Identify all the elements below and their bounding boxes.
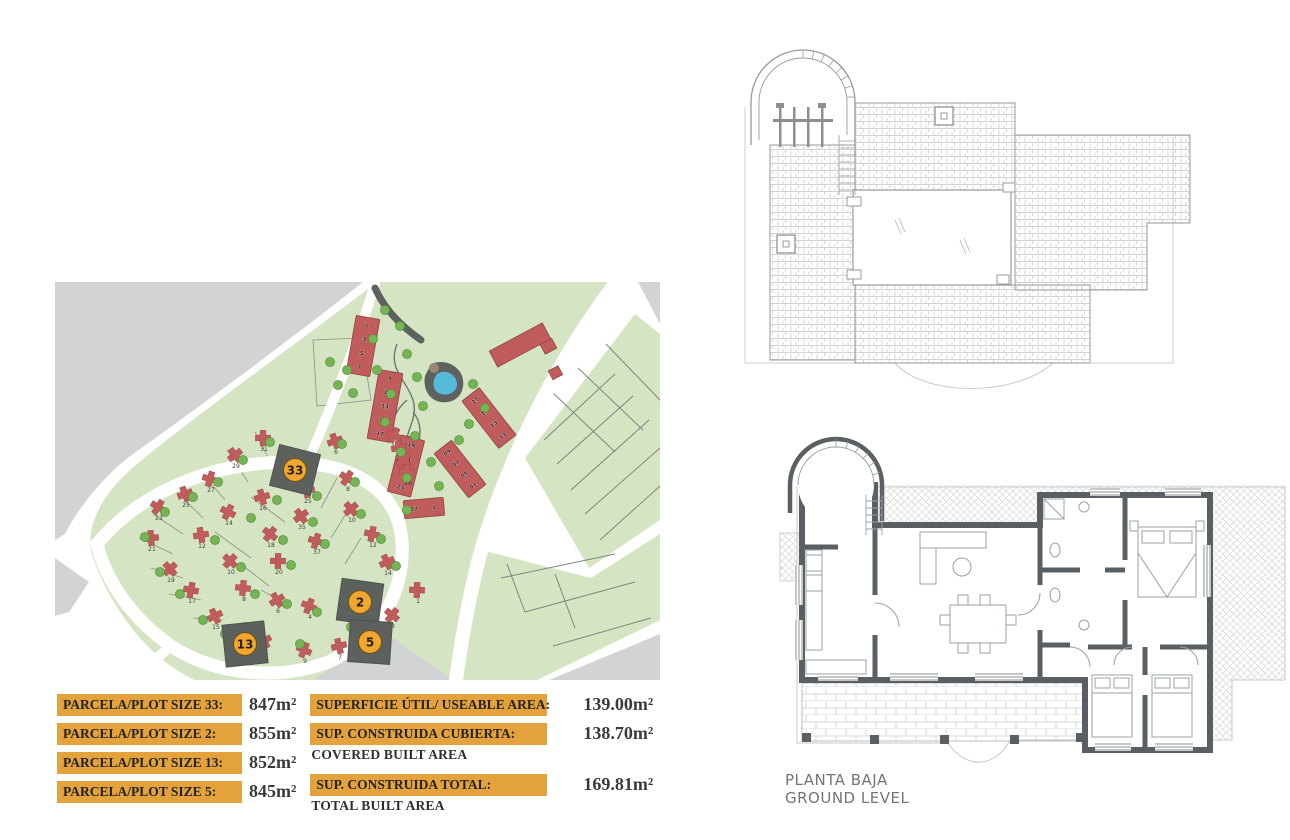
plot-size-row: PARCELA/PLOT SIZE 33:847m² [57,694,296,716]
villa-plot-number: 14 [225,520,233,527]
tree [326,358,335,367]
villa-plot-number: 25 [182,502,190,509]
tree [369,335,378,344]
villa-plot-number: 8 [242,596,246,603]
tree [403,350,412,359]
window [795,565,803,605]
tree [247,514,256,523]
villa-plot-number: 10 [227,569,235,576]
plot-size-value: 855m² [249,723,296,744]
villa-plot-number: 10 [348,517,356,524]
tree [214,478,223,487]
tree [469,380,478,389]
tree [321,540,330,549]
villa-plot-number: 16 [259,505,267,512]
villa-plot-number: 23 [155,515,163,522]
tree [349,389,358,398]
tree [377,535,386,544]
gray-area-top-right [638,282,660,324]
villa-plot-number: 37 [313,549,321,556]
roof-plan [735,45,1215,420]
pergola [773,103,833,147]
tree [481,404,490,413]
tree [381,418,390,427]
tree [455,436,464,445]
villa-plot-number: 12 [369,542,377,549]
window [1095,743,1131,751]
tree [176,590,185,599]
tree [357,510,366,519]
built-area-label: SUP. CONSTRUIDA CUBIERTA: [310,723,547,745]
villa-plot-number: 19 [167,577,175,584]
apartment-unit-number: 1 [432,505,437,511]
tree [199,616,208,625]
plot-size-label: PARCELA/PLOT SIZE 2: [57,723,242,745]
highlighted-plot-13: 13 [222,621,268,667]
pool-hut [429,363,439,373]
tree [411,432,420,441]
window [795,620,803,660]
courtyard [847,183,1015,285]
built-area-row: SUP. CONSTRUIDA TOTAL:TOTAL BUILT AREA16… [310,774,653,818]
built-area-label: SUPERFICIE ÚTIL/ USEABLE AREA: [310,694,547,716]
window [975,673,1023,681]
villa-plot-number: 35 [298,524,306,531]
villa-plot-number: 7 [338,654,342,661]
villa-plot-number: 6 [276,608,280,615]
tree [465,420,474,429]
tree [156,568,165,577]
built-area-value: 139.00m² [583,694,653,715]
property-brochure-page: { "legend": { "plots": [ {"label": "PARC… [0,0,1290,840]
tree [279,536,288,545]
villa-plot-number: 15 [212,624,220,631]
tree [392,562,401,571]
legend: PARCELA/PLOT SIZE 33:847m²PARCELA/PLOT S… [57,694,697,825]
plot-size-value: 852m² [249,752,296,773]
villa-plot-number: 29 [232,463,240,470]
villa-plot-number: 31 [260,446,268,453]
villa-plot-number: 12 [198,543,206,550]
plot-size-legend: PARCELA/PLOT SIZE 33:847m²PARCELA/PLOT S… [57,694,296,825]
tree [397,448,406,457]
tree [309,518,318,527]
tree [403,506,412,515]
roof-right-wing [1015,135,1190,290]
villa-plot-number: 27 [207,487,215,494]
gray-area-left [55,558,89,616]
plot-size-value: 845m² [249,781,296,802]
plot-size-value: 847m² [249,694,296,715]
tree [396,322,405,331]
tree [211,536,220,545]
built-area-legend: SUPERFICIE ÚTIL/ USEABLE AREA:139.00m²SU… [310,694,653,825]
tree [413,373,422,382]
plot-badge-number: 13 [237,638,254,652]
tree [435,482,444,491]
villa-plot-number: 14 [384,570,392,577]
tree [343,366,352,375]
tree [313,608,322,617]
plot-badge-number: 5 [366,636,374,650]
villa-plot-number: 4 [308,614,312,621]
ground-floor-plan: PLANTA BAJA GROUND LEVEL [740,435,1290,815]
built-area-row: SUPERFICIE ÚTIL/ USEABLE AREA:139.00m² [310,694,653,716]
tree [419,402,428,411]
tree [351,478,360,487]
plot-badge-number: 33 [287,464,304,478]
tree [403,474,412,483]
plot-size-row: PARCELA/PLOT SIZE 13:852m² [57,752,296,774]
site-plan: 1357911131517192123251715131109070501271… [55,282,660,682]
tree [287,561,296,570]
villa-plot-number: 21 [148,546,156,553]
built-area-label: SUP. CONSTRUIDA TOTAL: [310,774,547,796]
plan-title-en: GROUND LEVEL [785,789,909,807]
tree [141,533,150,542]
tree [338,440,347,449]
tree [373,366,382,375]
tree [296,640,305,649]
plot-size-row: PARCELA/PLOT SIZE 5:845m² [57,781,296,803]
tree [387,390,396,399]
villa-plot-number: 18 [267,542,275,549]
connector-road [125,646,171,680]
tree [313,492,322,501]
tree [239,456,248,465]
tree [237,563,246,572]
tree [161,508,170,517]
tree [381,306,390,315]
tree [251,590,260,599]
roof-bottom-band [855,285,1090,363]
villa-plot-number: 6 [334,449,338,456]
villa-plot-number: 25 [304,498,312,505]
highlighted-plot-2: 2 [336,578,383,625]
plot-size-row: PARCELA/PLOT SIZE 2:855m² [57,723,296,745]
built-area-sublabel: COVERED BUILT AREA [311,747,547,763]
brick-terrace [802,683,1085,741]
tree [283,600,292,609]
built-area-row: SUP. CONSTRUIDA CUBIERTA:COVERED BUILT A… [310,723,653,767]
tree [189,493,198,502]
plot-badge-number: 2 [356,596,364,610]
plot-size-label: PARCELA/PLOT SIZE 33: [57,694,242,716]
built-area-value: 138.70m² [583,723,653,744]
window [890,673,938,681]
tree [334,381,343,390]
plot-size-label: PARCELA/PLOT SIZE 5: [57,781,242,803]
villa-plot-number: 9 [303,658,307,665]
villa-plot-number: 20 [275,569,283,576]
window [1165,488,1201,496]
villa-plot-number: 17 [188,598,196,605]
window [1090,488,1120,496]
tree [273,496,282,505]
plot-size-label: PARCELA/PLOT SIZE 13: [57,752,242,774]
tree [427,458,436,467]
window [1155,743,1193,751]
plan-title-es: PLANTA BAJA [785,771,888,789]
villa-plot-number: 1 [416,598,420,605]
built-area-value: 169.81m² [583,774,653,795]
built-area-sublabel: TOTAL BUILT AREA [311,798,547,814]
window [1203,545,1211,597]
highlighted-plot-5: 5 [348,620,393,665]
villa-plot-number: 8 [346,486,350,493]
tree [266,438,275,447]
